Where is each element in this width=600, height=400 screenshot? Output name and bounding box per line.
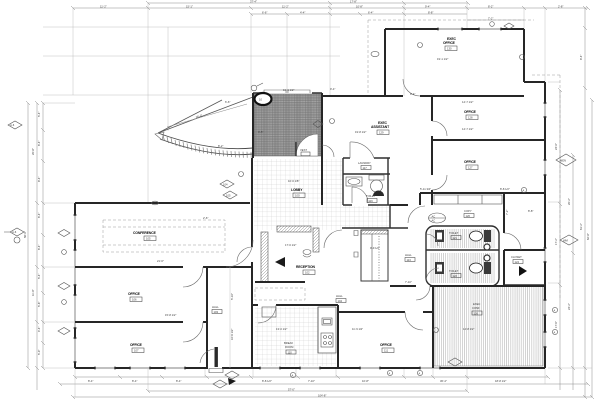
svg-text:10: 10 <box>259 98 262 102</box>
svg-text:5'-4": 5'-4" <box>37 112 41 117</box>
svg-text:104: 104 <box>223 183 228 187</box>
svg-text:105: 105 <box>146 237 151 241</box>
svg-text:36'-4": 36'-4" <box>440 379 447 383</box>
svg-text:116: 116 <box>369 199 374 203</box>
svg-text:10'-8": 10'-8" <box>362 379 369 383</box>
svg-text:37'-4": 37'-4" <box>250 0 257 4</box>
svg-text:LAUNDRY: LAUNDRY <box>358 161 371 165</box>
svg-text:EXEC: EXEC <box>473 302 480 306</box>
svg-text:102: 102 <box>305 271 310 275</box>
svg-text:121: 121 <box>453 236 458 240</box>
svg-text:13'-0 1/2": 13'-0 1/2" <box>276 327 287 331</box>
svg-text:110: 110 <box>288 350 293 354</box>
svg-text:16'-9 1/2": 16'-9 1/2" <box>283 88 294 92</box>
svg-text:A-6: A-6 <box>10 123 15 127</box>
svg-text:129: 129 <box>379 131 384 135</box>
svg-text:14'-7 1/2": 14'-7 1/2" <box>462 100 473 104</box>
svg-text:10'-8": 10'-8" <box>356 5 363 9</box>
svg-text:100: 100 <box>295 194 300 198</box>
svg-text:OFFICE: OFFICE <box>464 160 477 164</box>
svg-text:8'-8 1/2": 8'-8 1/2" <box>500 187 510 191</box>
svg-text:CLOSET: CLOSET <box>511 255 522 259</box>
svg-text:17'-8": 17'-8" <box>350 0 357 4</box>
svg-text:6'-6": 6'-6" <box>225 100 230 104</box>
svg-text:10'-6 1/8": 10'-6 1/8" <box>288 179 299 183</box>
svg-text:57'-0": 57'-0" <box>288 388 295 392</box>
svg-text:A: A <box>389 371 391 375</box>
svg-text:117: 117 <box>363 166 368 170</box>
svg-text:A-6: A-6 <box>12 230 17 234</box>
svg-text:120: 120 <box>466 214 471 218</box>
svg-text:A: A <box>554 330 556 334</box>
svg-text:122: 122 <box>453 274 458 278</box>
svg-text:105: 105 <box>226 194 231 198</box>
svg-text:107: 107 <box>134 349 139 353</box>
svg-text:OFFICE: OFFICE <box>380 343 393 347</box>
svg-text:TOILET: TOILET <box>366 194 376 198</box>
svg-text:5'-11 3/4": 5'-11 3/4" <box>420 187 431 191</box>
svg-text:104'-8": 104'-8" <box>318 394 326 398</box>
svg-text:5'-8": 5'-8" <box>37 302 41 307</box>
svg-text:6'-4": 6'-4" <box>37 141 41 146</box>
svg-text:7'-10": 7'-10" <box>405 280 412 284</box>
svg-text:62'-8": 62'-8" <box>586 233 590 240</box>
svg-text:8'-8 1/2": 8'-8 1/2" <box>262 379 272 383</box>
svg-text:103: 103 <box>214 310 219 314</box>
svg-text:24'-0": 24'-0" <box>554 143 558 150</box>
svg-text:127: 127 <box>468 166 473 170</box>
svg-text:5'-10": 5'-10" <box>230 293 234 300</box>
svg-text:AC: AC <box>432 215 436 219</box>
svg-text:4'-4": 4'-4" <box>37 327 41 332</box>
svg-text:CONF: CONF <box>472 306 480 310</box>
svg-text:OFFICE: OFFICE <box>130 343 143 347</box>
svg-text:113: 113 <box>407 258 412 262</box>
svg-text:11'-2": 11'-2" <box>100 5 107 9</box>
svg-text:HALL: HALL <box>405 253 412 257</box>
svg-text:6'-6": 6'-6" <box>262 11 267 15</box>
svg-text:17'-6 1/2": 17'-6 1/2" <box>285 243 296 247</box>
svg-text:6'-4": 6'-4" <box>368 11 373 15</box>
svg-text:9'-4": 9'-4" <box>330 87 335 91</box>
svg-text:8'-4": 8'-4" <box>37 177 41 182</box>
svg-text:20'-8": 20'-8" <box>31 148 35 155</box>
svg-text:8'-4": 8'-4" <box>88 379 93 383</box>
svg-text:106: 106 <box>132 298 137 302</box>
svg-text:CONFERENCE: CONFERENCE <box>133 231 157 235</box>
svg-text:OFFICE: OFFICE <box>128 292 141 296</box>
svg-text:10'-6 1/2": 10'-6 1/2" <box>230 329 234 340</box>
svg-text:ASSISTANT: ASSISTANT <box>371 125 390 129</box>
svg-text:A: A <box>554 308 556 312</box>
svg-text:24'-2": 24'-2" <box>567 303 571 310</box>
svg-text:BREAK: BREAK <box>284 341 293 345</box>
svg-text:9'-9 1/2": 9'-9 1/2" <box>370 246 380 250</box>
svg-text:7'-2": 7'-2" <box>505 210 509 215</box>
svg-text:19'-8 1/2": 19'-8 1/2" <box>355 130 366 134</box>
svg-text:AC: AC <box>432 219 436 223</box>
svg-text:8'-4": 8'-4" <box>579 55 583 60</box>
svg-text:2'-6": 2'-6" <box>203 216 208 220</box>
svg-text:8'-4": 8'-4" <box>176 379 181 383</box>
svg-text:HALL: HALL <box>336 294 343 298</box>
svg-text:17'-2": 17'-2" <box>554 238 558 245</box>
svg-text:MEN: MEN <box>560 159 566 163</box>
svg-text:4'-4": 4'-4" <box>300 11 305 15</box>
svg-text:15'-8 1/2": 15'-8 1/2" <box>165 313 176 317</box>
svg-text:6'-4": 6'-4" <box>37 245 41 250</box>
svg-text:17'-6": 17'-6" <box>554 321 558 328</box>
svg-text:9'-8": 9'-8" <box>258 130 263 134</box>
svg-text:104: 104 <box>338 299 343 303</box>
svg-text:HALL: HALL <box>212 305 219 309</box>
svg-text:124: 124 <box>515 260 520 264</box>
svg-text:15'-1": 15'-1" <box>186 5 193 9</box>
svg-text:A: A <box>292 373 294 377</box>
svg-text:128: 128 <box>468 116 473 120</box>
svg-text:5'-0": 5'-0" <box>37 350 41 355</box>
svg-text:ROOM: ROOM <box>285 345 294 349</box>
svg-text:18'-8 1/2": 18'-8 1/2" <box>495 379 506 383</box>
svg-text:A: A <box>419 371 421 375</box>
svg-text:6'-4": 6'-4" <box>37 213 41 218</box>
svg-text:11'-2": 11'-2" <box>282 5 289 9</box>
svg-text:5'-4": 5'-4" <box>37 274 41 279</box>
svg-text:A: A <box>523 188 525 192</box>
svg-text:7'-10": 7'-10" <box>308 379 315 383</box>
svg-text:8'-4": 8'-4" <box>132 379 137 383</box>
svg-text:21'-6": 21'-6" <box>157 259 164 263</box>
svg-text:14'-7 1/2": 14'-7 1/2" <box>462 127 473 131</box>
svg-text:TOILET: TOILET <box>449 231 459 235</box>
svg-text:8'-2": 8'-2" <box>218 144 223 148</box>
svg-text:130: 130 <box>447 47 452 51</box>
svg-text:VEST: VEST <box>300 148 307 152</box>
svg-text:TOILET: TOILET <box>449 269 459 273</box>
svg-text:RECEPTION: RECEPTION <box>296 265 316 269</box>
svg-text:8'-8": 8'-8" <box>428 11 433 15</box>
svg-text:20'-2": 20'-2" <box>567 198 571 205</box>
svg-text:WM: WM <box>563 239 569 243</box>
svg-text:OFFICE: OFFICE <box>443 41 456 45</box>
svg-text:9'-4": 9'-4" <box>410 92 415 96</box>
svg-text:126: 126 <box>474 311 479 315</box>
svg-text:2'-8": 2'-8" <box>558 5 563 9</box>
svg-text:OFFICE: OFFICE <box>464 110 477 114</box>
svg-text:111: 111 <box>384 349 389 353</box>
svg-text:8'-2": 8'-2" <box>488 5 493 9</box>
svg-text:9'-4": 9'-4" <box>425 5 430 9</box>
svg-text:LOBBY: LOBBY <box>291 188 303 192</box>
svg-text:11'-8": 11'-8" <box>31 289 35 296</box>
svg-text:14'-8 1/2": 14'-8 1/2" <box>463 327 474 331</box>
svg-text:11'-9 1/2": 11'-9 1/2" <box>352 327 363 331</box>
svg-text:61'-2": 61'-2" <box>579 223 583 230</box>
svg-text:COPY: COPY <box>464 209 472 213</box>
svg-text:19'-1 1/2": 19'-1 1/2" <box>437 57 448 61</box>
svg-text:8'-8": 8'-8" <box>528 209 533 213</box>
